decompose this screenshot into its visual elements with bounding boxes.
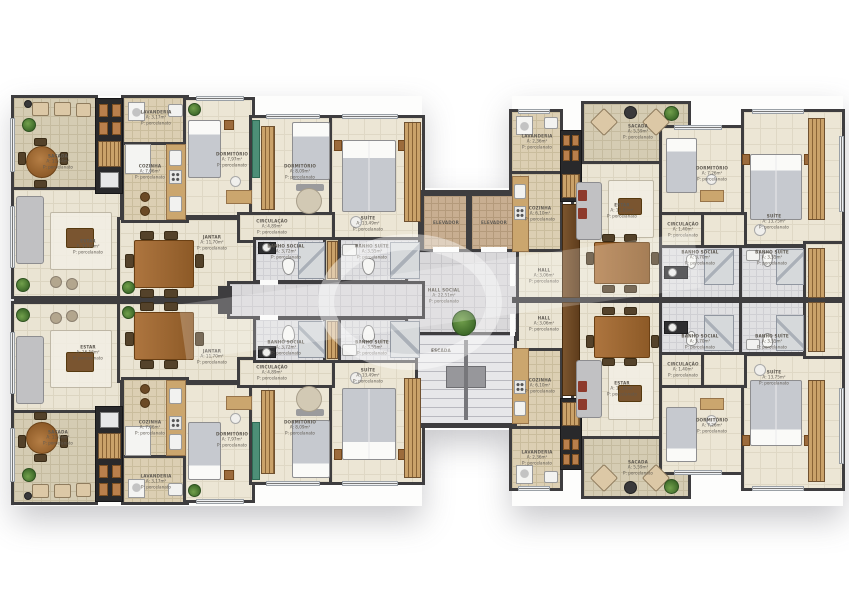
- right-top-desk: [700, 190, 724, 202]
- left-bottom-wc: [282, 325, 295, 342]
- right-bottom-nst: [742, 435, 750, 446]
- left-bottom-beds: [188, 422, 221, 480]
- left-bottom-tablerect: [134, 312, 194, 360]
- left-bottom-wood: [99, 483, 108, 496]
- right-top-beds: [666, 138, 697, 193]
- left-bottom-chair: [34, 454, 47, 462]
- left-top-bedd: [342, 140, 396, 212]
- right-bottom-desk: [700, 398, 724, 410]
- left-top-pouf: [50, 276, 62, 288]
- core-gap: [433, 247, 459, 252]
- right-bottom-chair: [651, 335, 659, 348]
- left-top-beds: [188, 120, 221, 178]
- left-top-plant: [188, 103, 201, 116]
- left-bottom-wood: [112, 465, 121, 478]
- left-bottom-nst: [334, 449, 342, 460]
- left-bottom-window: [10, 428, 15, 482]
- left-top-wood: [112, 122, 121, 135]
- right-top-window: [518, 109, 550, 114]
- right-top-chair: [602, 234, 615, 242]
- left-top-appl: [100, 172, 119, 188]
- left-bottom-window: [10, 332, 15, 394]
- right-bottom-wood: [572, 454, 579, 465]
- right-top-tablerect: [594, 242, 650, 284]
- left-bottom-teal: [252, 422, 260, 480]
- left-bottom-ottoman: [350, 372, 362, 384]
- left-top-room-circulacao: [240, 215, 332, 240]
- left-top-tablerect: [134, 240, 194, 288]
- right-top-room-circulacao: [662, 215, 704, 248]
- left-top-hatch: [98, 141, 121, 167]
- right-top-coffee: [618, 198, 642, 215]
- left-bottom-shower: [298, 321, 325, 358]
- left-bottom-chair: [164, 302, 178, 311]
- left-bottom-sink: [168, 483, 183, 496]
- core-room-elevator-2: [472, 196, 516, 250]
- right-top-chair: [602, 285, 615, 293]
- left-top-pouf: [66, 278, 78, 290]
- left-bottom-armchair: [76, 483, 91, 497]
- left-top-chair: [195, 254, 204, 268]
- right-bottom-sinkc: [668, 323, 677, 332]
- left-bottom-hatch: [327, 321, 338, 359]
- right-bottom-red: [578, 381, 587, 392]
- left-bottom-hatch: [404, 378, 421, 478]
- core-room-corridor-left: [230, 284, 422, 316]
- left-bottom-pouf: [66, 310, 78, 322]
- left-top-armchair: [76, 103, 91, 117]
- left-top-sink: [169, 150, 182, 166]
- left-bottom-wc: [362, 325, 375, 342]
- right-bottom-beds: [666, 407, 697, 462]
- right-top-chair: [651, 252, 659, 265]
- left-bottom-tableround: [26, 422, 58, 454]
- right-bottom-sink: [514, 401, 526, 416]
- right-bottom-window: [674, 470, 722, 475]
- left-bottom-bedd: [342, 388, 396, 460]
- left-bottom-stool: [140, 398, 150, 408]
- left-bottom-room-circulacao: [240, 360, 332, 385]
- right-bottom-washer: [516, 465, 533, 484]
- right-top-window: [752, 109, 804, 114]
- right-bottom-red: [578, 399, 587, 410]
- left-top-sofa: [16, 196, 44, 264]
- left-top-chair: [60, 152, 68, 165]
- right-bottom-plant: [664, 479, 679, 494]
- left-top-sink: [169, 196, 182, 212]
- right-bottom-chair: [602, 358, 615, 366]
- left-top-beds: [292, 122, 330, 180]
- left-bottom-stool: [140, 384, 150, 394]
- right-top-window: [674, 125, 722, 130]
- core-gap: [481, 247, 507, 252]
- left-bottom-chair: [18, 435, 26, 448]
- right-bottom-bedd: [750, 380, 802, 446]
- right-bottom-stove: [514, 380, 526, 394]
- right-top-sink: [746, 250, 760, 261]
- left-top-chair: [125, 254, 134, 268]
- right-bottom-gap: [510, 314, 515, 336]
- right-top-chair: [624, 285, 637, 293]
- left-bottom-pouf: [50, 312, 62, 324]
- left-bottom-chair: [60, 435, 68, 448]
- left-top-sinkc: [262, 243, 271, 252]
- left-top-armchair: [54, 102, 71, 116]
- core-wall: [218, 286, 232, 314]
- right-top-wood: [563, 150, 570, 161]
- left-top-ruground: [296, 188, 322, 214]
- right-bottom-window: [752, 486, 804, 491]
- left-bottom-armchair: [54, 484, 71, 498]
- right-top-chair: [624, 234, 637, 242]
- right-top-window: [839, 136, 844, 212]
- right-bottom-hatch: [808, 302, 825, 352]
- left-top-chair: [164, 231, 178, 240]
- right-top-sinkc: [668, 268, 677, 277]
- right-bottom-shower: [776, 315, 804, 351]
- left-top-chair: [18, 152, 26, 165]
- left-top-tableround: [26, 146, 58, 178]
- right-top-chair: [586, 252, 594, 265]
- left-bottom-ruground: [296, 386, 322, 412]
- right-bottom-window: [839, 388, 844, 464]
- left-bottom-beds: [292, 420, 330, 478]
- left-top-desk: [226, 190, 252, 204]
- left-top-sink: [342, 244, 357, 256]
- left-bottom-sink: [169, 388, 182, 404]
- left-top-plant: [122, 281, 135, 294]
- right-bottom-chair: [624, 307, 637, 315]
- left-top-hatch: [261, 126, 275, 210]
- right-bottom-sink: [746, 339, 760, 350]
- right-top-stove: [514, 206, 526, 220]
- left-top-coffee: [66, 228, 94, 248]
- left-bottom-chair: [140, 302, 154, 311]
- left-bottom-armchair: [32, 484, 49, 498]
- left-top-wood: [99, 104, 108, 117]
- right-top-ottoman: [706, 174, 717, 185]
- left-top-stool: [140, 192, 150, 202]
- right-bottom-wood: [572, 439, 579, 450]
- right-top-darkround: [624, 106, 637, 119]
- right-bottom-shower: [704, 315, 734, 351]
- right-top-wood: [572, 135, 579, 146]
- right-bottom-coffee: [618, 385, 642, 402]
- left-bottom-gap: [260, 315, 278, 320]
- left-top-armchair: [32, 102, 49, 116]
- right-top-wood: [572, 150, 579, 161]
- left-bottom-chair: [140, 360, 154, 369]
- left-bottom-wood: [112, 483, 121, 496]
- left-top-window: [266, 114, 320, 119]
- left-top-wood: [99, 122, 108, 135]
- right-top-ottoman: [754, 224, 766, 236]
- left-top-hatch: [404, 122, 421, 222]
- left-top-gap: [260, 280, 278, 285]
- core-wall: [466, 190, 472, 252]
- left-top-nst: [224, 120, 234, 130]
- left-bottom-fridge: [125, 426, 151, 456]
- left-bottom-chair: [34, 412, 47, 420]
- left-top-wood: [112, 104, 121, 117]
- right-top-red: [578, 190, 587, 201]
- left-bottom-wood: [99, 465, 108, 478]
- left-top-nst: [334, 140, 342, 151]
- right-bottom-wood: [563, 454, 570, 465]
- left-top-window: [10, 118, 15, 172]
- left-bottom-sinkc: [262, 348, 271, 357]
- left-bottom-sink: [169, 434, 182, 450]
- left-bottom-window: [196, 499, 244, 504]
- left-bottom-hatch: [98, 433, 121, 459]
- right-bottom-window: [518, 486, 550, 491]
- right-bottom-hatch: [808, 380, 825, 482]
- left-top-chair: [34, 138, 47, 146]
- left-top-ottoman: [350, 216, 362, 228]
- left-top-shower: [390, 242, 420, 279]
- right-top-red: [578, 208, 587, 219]
- floor-plan: SACADAA: 11,04m²P: porcelanatoESTARA: 16…: [0, 0, 849, 600]
- left-top-teal: [252, 120, 260, 178]
- right-bottom-ottoman: [706, 415, 717, 426]
- left-top-window: [10, 206, 15, 268]
- left-top-stove: [169, 170, 182, 184]
- core-wall: [418, 423, 514, 428]
- left-top-chair: [164, 289, 178, 298]
- right-bottom-wc: [762, 333, 773, 348]
- core-stairdiv: [464, 340, 468, 420]
- right-bottom-chair: [602, 307, 615, 315]
- right-bottom-chair: [586, 335, 594, 348]
- left-bottom-chair: [195, 332, 204, 346]
- left-top-window: [196, 96, 244, 101]
- left-bottom-desk: [226, 396, 252, 410]
- left-bottom-plant: [16, 308, 30, 322]
- core-wall: [14, 296, 232, 304]
- left-top-fridge: [125, 144, 151, 174]
- left-top-plant: [16, 278, 30, 292]
- left-top-chair: [140, 289, 154, 298]
- left-top-shower: [298, 242, 325, 279]
- left-bottom-shower: [390, 321, 420, 358]
- left-bottom-sidetable: [24, 492, 32, 500]
- left-bottom-window: [342, 481, 398, 486]
- left-bottom-window: [266, 481, 320, 486]
- left-bottom-ottoman: [230, 413, 241, 424]
- left-top-washer: [128, 102, 145, 121]
- core-room-elevator-1: [424, 196, 468, 250]
- left-bottom-chair: [125, 332, 134, 346]
- right-bottom-sink: [544, 471, 558, 483]
- left-bottom-plant: [122, 306, 135, 319]
- left-top-window: [342, 114, 398, 119]
- right-bottom-ottoman: [754, 364, 766, 376]
- right-top-gap: [510, 264, 515, 286]
- right-top-wood: [563, 135, 570, 146]
- right-top-sink: [514, 184, 526, 199]
- right-bottom-room-circulacao: [662, 352, 704, 385]
- left-bottom-plant: [188, 484, 201, 497]
- core-plant: [452, 310, 476, 336]
- right-top-sink: [544, 117, 558, 129]
- left-bottom-sofa: [16, 336, 44, 404]
- left-bottom-nst: [224, 470, 234, 480]
- left-bottom-chair: [164, 360, 178, 369]
- left-top-ottoman: [230, 176, 241, 187]
- left-top-stool: [140, 206, 150, 216]
- left-bottom-appl: [100, 412, 119, 428]
- right-top-washer: [516, 116, 533, 135]
- right-top-hatch: [808, 248, 825, 298]
- left-bottom-washer: [128, 479, 145, 498]
- left-bottom-hatch: [261, 390, 275, 474]
- left-top-sink: [168, 104, 183, 117]
- right-bottom-tablerect: [594, 316, 650, 358]
- right-top-room-closet-suite: [704, 215, 744, 248]
- right-top-plant: [664, 106, 679, 121]
- right-top-shower: [704, 249, 734, 285]
- right-bottom-darkround: [624, 481, 637, 494]
- left-bottom-stove: [169, 416, 182, 430]
- left-bottom-plant: [22, 468, 36, 482]
- left-bottom-sink: [342, 344, 357, 356]
- right-bottom-chair: [624, 358, 637, 366]
- left-top-plant: [22, 118, 36, 132]
- left-top-hatch: [327, 241, 338, 279]
- right-top-nst: [742, 154, 750, 165]
- left-top-chair: [140, 231, 154, 240]
- right-bottom-room-closet-suite: [704, 352, 744, 385]
- right-top-shower: [776, 249, 804, 285]
- left-top-chair: [34, 180, 47, 188]
- right-bottom-wood: [563, 439, 570, 450]
- right-top-bedd: [750, 154, 802, 220]
- right-top-hatch: [808, 118, 825, 220]
- left-bottom-coffee: [66, 352, 94, 372]
- left-top-sidetable: [24, 100, 32, 108]
